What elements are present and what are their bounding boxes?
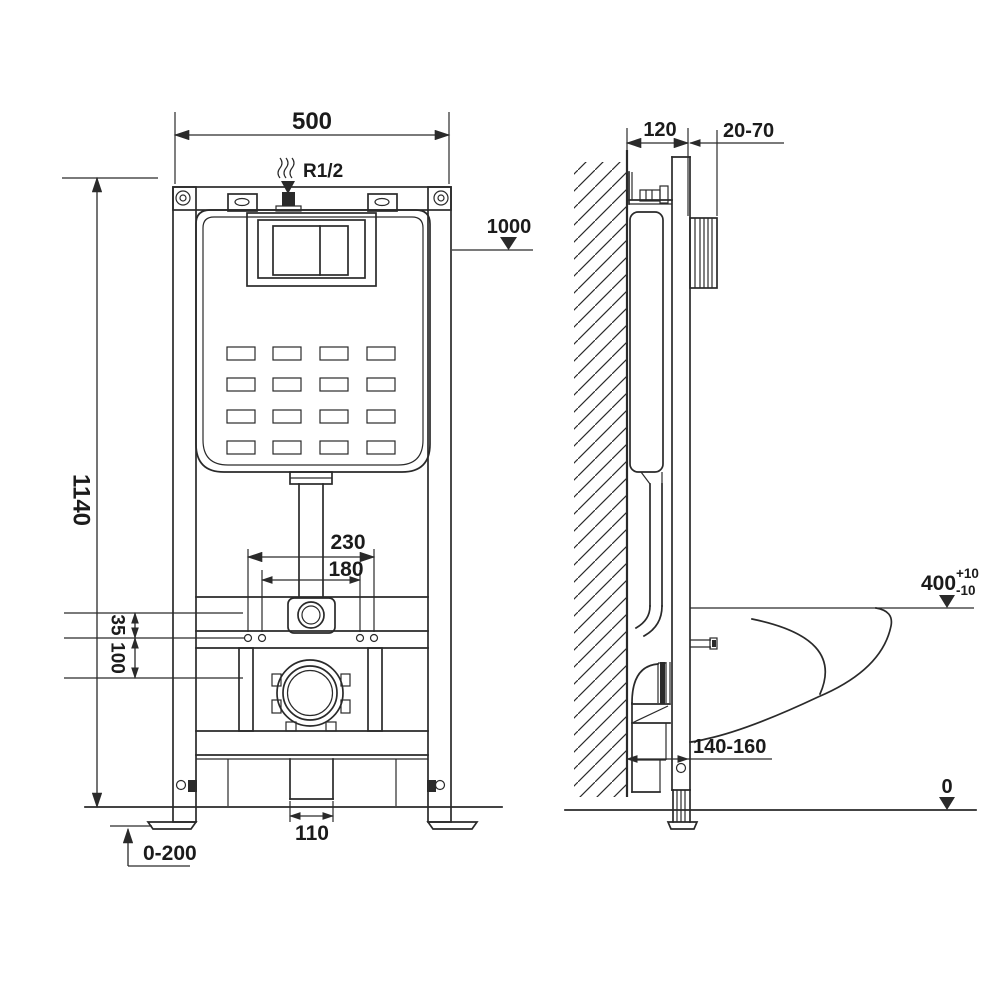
level-mark-icon	[939, 595, 955, 608]
foot-plate	[148, 822, 196, 829]
flush-bend-connector	[288, 598, 335, 633]
corner-screw-icon	[434, 191, 448, 205]
leg-lock-hole	[436, 781, 445, 790]
leg-lock-hole	[177, 781, 186, 790]
dim-inner-span-label: 180	[328, 558, 363, 581]
waste-outlet-assembly	[239, 648, 382, 731]
concealed-cistern	[196, 210, 430, 472]
dim-offset-large-label: 100	[107, 642, 128, 674]
dim-outer-span-label: 230	[330, 531, 365, 554]
frame-left-rail	[173, 187, 196, 822]
dim-offset-small-label: 35	[107, 614, 128, 636]
dim-bowl-height-minus-label: -10	[956, 583, 976, 598]
frame-profile-side	[672, 157, 690, 790]
dim-frame-height-label: 1140	[68, 474, 95, 526]
level-mark-icon	[500, 237, 517, 250]
flush-pipe-front	[290, 472, 332, 597]
dim-floor-level-label: 0	[941, 776, 952, 798]
dim-frame-width-label: 500	[292, 108, 332, 135]
mounting-stud	[690, 638, 717, 649]
insulation-grid	[227, 347, 395, 454]
wall-hatching	[574, 162, 627, 797]
dim-bowl-height-label: 400	[921, 572, 956, 595]
technical-drawing: R1/2	[0, 0, 1000, 1000]
wall-bracket	[629, 172, 672, 204]
front-view: R1/2	[62, 108, 533, 866]
frame-right-rail	[428, 187, 451, 822]
water-flow-icon	[278, 158, 282, 178]
hanger-tab	[368, 194, 397, 211]
waste-elbow-side	[632, 662, 670, 792]
leg-clamp	[188, 780, 197, 792]
dim-leg-adjust-label: 0-200	[143, 842, 197, 865]
dim-water-supply-label: R1/2	[303, 161, 343, 182]
hanger-tab	[228, 194, 257, 211]
level-mark-icon	[939, 797, 955, 810]
foot-plate	[428, 822, 477, 829]
dim-frame-depth-label: 120	[643, 119, 676, 141]
corner-screw-icon	[176, 191, 190, 205]
fixing-holes	[245, 635, 378, 642]
front-dimensions: 500 1140 1000 230 180 35 100	[62, 108, 533, 866]
side-view: 120 20-70 400 +10 -10 140-160 0	[565, 119, 979, 829]
bowl-inner-curve	[752, 619, 825, 694]
cistern-side	[630, 212, 663, 636]
finished-wall-section	[690, 218, 717, 288]
water-supply-connection: R1/2	[276, 158, 343, 211]
flush-pipe-bend	[636, 606, 650, 628]
dim-waste-offset-label: 140-160	[693, 736, 766, 758]
side-dimensions: 120 20-70 400 +10 -10 140-160 0	[627, 119, 979, 810]
dim-waste-width-label: 110	[295, 822, 329, 845]
foot-plate	[668, 822, 697, 829]
frame-hole	[677, 764, 686, 773]
leg-clamp	[427, 780, 436, 792]
drawing-canvas: R1/2	[0, 0, 1000, 1000]
dual-flush-buttons	[273, 226, 348, 275]
dim-bowl-height-plus-label: +10	[956, 566, 979, 581]
waste-pipe-front	[228, 759, 396, 806]
dim-flush-level-label: 1000	[487, 216, 532, 238]
dim-wall-finish-label: 20-70	[723, 120, 774, 142]
toilet-bowl-outline	[690, 608, 974, 742]
